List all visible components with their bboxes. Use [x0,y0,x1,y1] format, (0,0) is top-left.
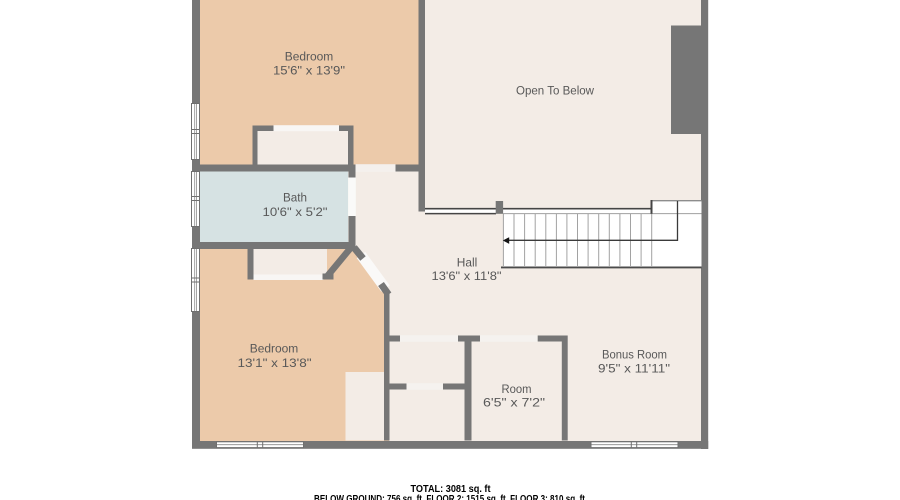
svg-text:Bath: Bath [283,191,307,205]
svg-text:Room: Room [502,382,532,396]
svg-text:Bonus Room: Bonus Room [602,348,667,362]
svg-text:13'6" x 11'8": 13'6" x 11'8" [432,269,502,283]
svg-text:Bedroom: Bedroom [285,49,334,63]
svg-text:9'5" x 11'11": 9'5" x 11'11" [598,362,670,376]
svg-text:15'6" x 13'9": 15'6" x 13'9" [273,64,345,78]
svg-text:Bedroom: Bedroom [250,341,299,355]
svg-text:BELOW GROUND: 756 sq. ft FLOO: BELOW GROUND: 756 sq. ft FLOOR 2: 1515 s… [314,494,586,500]
svg-text:6'5" x 7'2": 6'5" x 7'2" [483,395,545,409]
svg-text:Open To Below: Open To Below [516,84,594,98]
svg-text:Hall: Hall [457,255,478,269]
svg-text:10'6" x 5'2": 10'6" x 5'2" [263,205,328,219]
svg-text:13'1" x 13'8": 13'1" x 13'8" [238,356,312,370]
